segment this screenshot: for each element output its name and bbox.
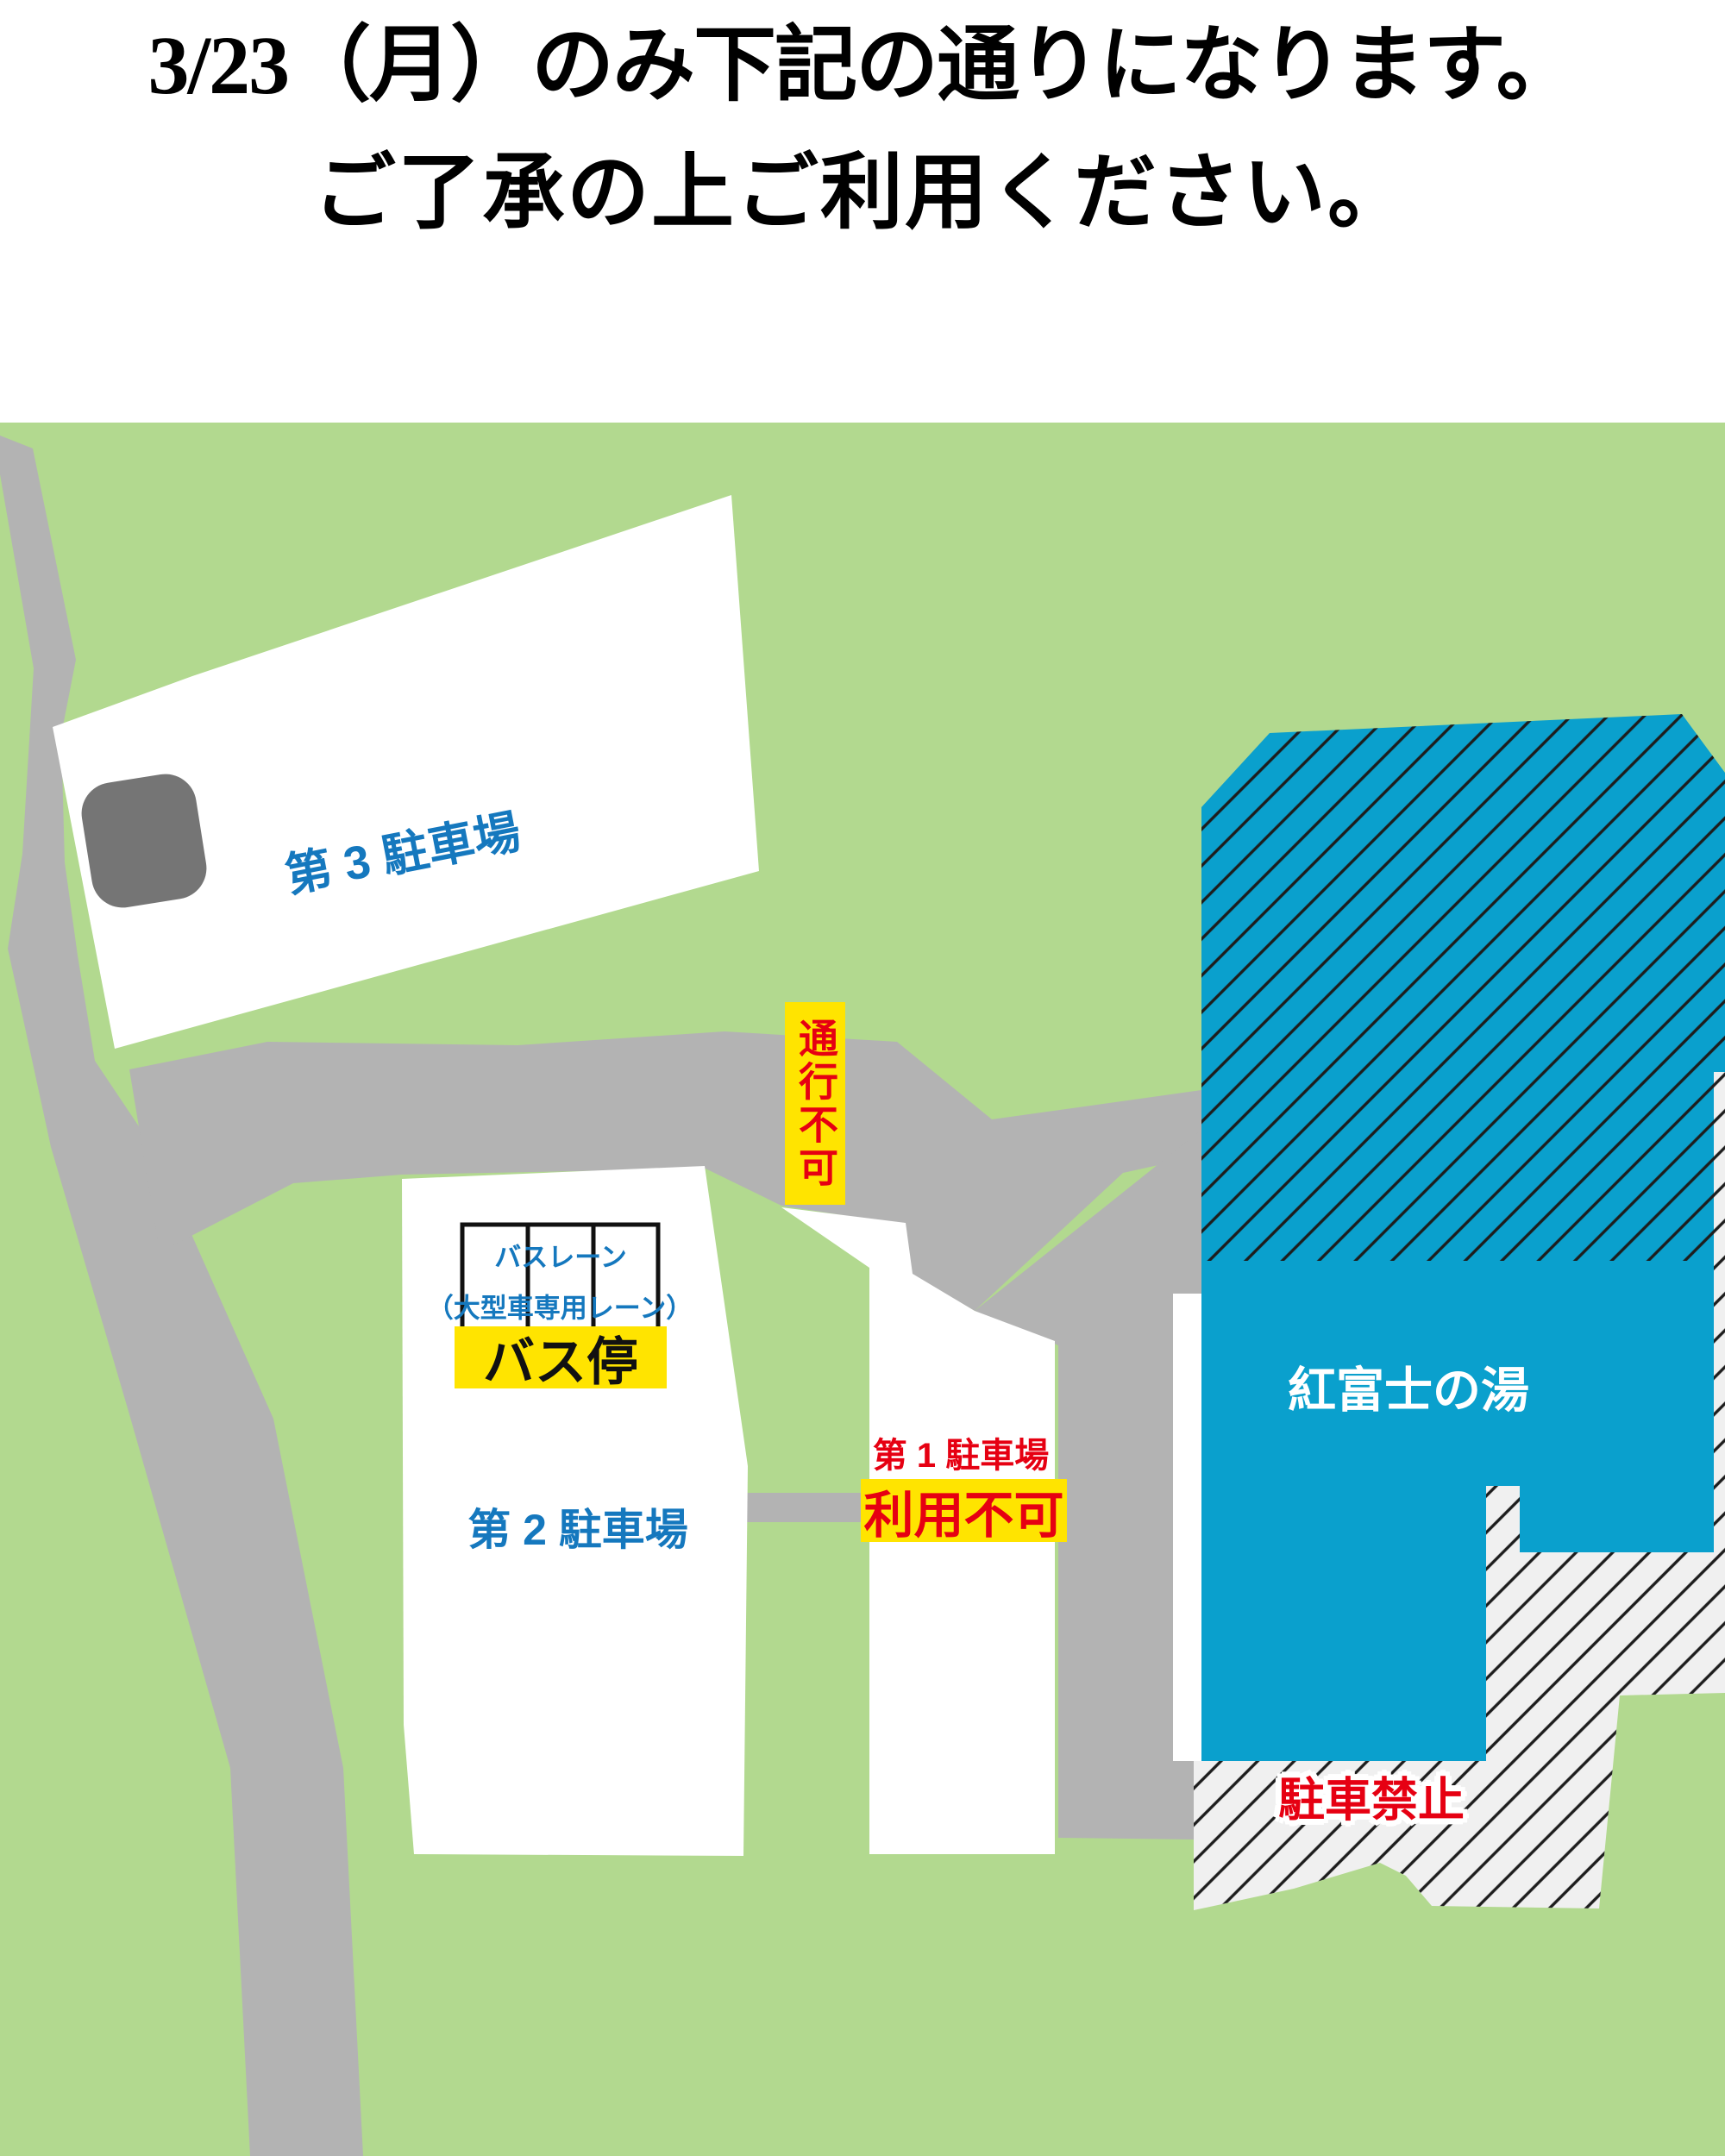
no-parking-label: 駐車禁止 — [1278, 1762, 1465, 1830]
notice-title: 3/23（月）のみ下記の通りになります。 ご了承の上ご利用ください。 — [0, 24, 1725, 235]
lot1-label: 第 1 駐車場 — [873, 1427, 1049, 1477]
lot2-label: 第 2 駐車場 — [467, 1495, 688, 1557]
notice-title-line1: 3/23（月）のみ下記の通りになります。 — [0, 24, 1725, 107]
building-hatched-roof — [1201, 714, 1725, 1261]
notice-title-line2: ご了承の上ご利用ください。 — [0, 152, 1725, 235]
lot1-closed-sign-text: 利用不可 — [863, 1475, 1063, 1547]
parking-map — [0, 0, 1725, 2156]
road-building-margin — [1173, 1294, 1201, 1761]
lot3-structure — [77, 769, 210, 912]
road-closed-sign: 通行不可 — [785, 1002, 845, 1205]
parking-notice-page: { "title": { "line1": "3/23（月）のみ下記の通りになり… — [0, 0, 1725, 2156]
bus-lane-label: バスレーン — [494, 1236, 626, 1275]
bus-stop-sign: バス停 — [455, 1326, 667, 1388]
lot1-closed-sign: 利用不可 — [861, 1479, 1067, 1542]
bus-stop-sign-text: バス停 — [483, 1320, 638, 1395]
building-label: 紅富士の湯 — [1288, 1352, 1529, 1422]
